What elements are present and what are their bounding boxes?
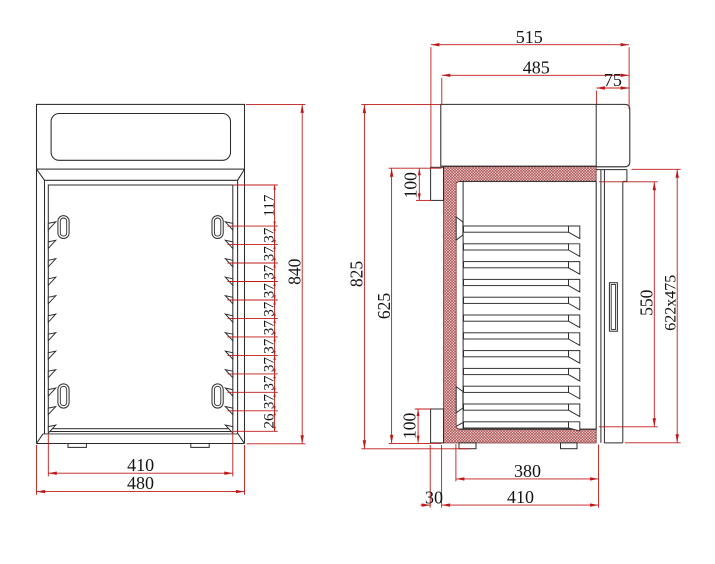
svg-text:485: 485 xyxy=(523,57,550,77)
svg-text:480: 480 xyxy=(127,473,154,493)
svg-text:37: 37 xyxy=(262,375,278,391)
svg-text:37: 37 xyxy=(262,394,278,410)
svg-text:26: 26 xyxy=(262,413,278,429)
svg-text:625: 625 xyxy=(374,293,394,320)
svg-text:37: 37 xyxy=(262,227,278,243)
svg-text:515: 515 xyxy=(516,27,543,47)
svg-text:30: 30 xyxy=(425,488,443,508)
svg-text:622x475: 622x475 xyxy=(662,275,679,331)
svg-text:100: 100 xyxy=(401,172,421,199)
svg-text:37: 37 xyxy=(262,320,278,336)
svg-text:37: 37 xyxy=(262,264,278,280)
svg-text:410: 410 xyxy=(127,455,154,475)
svg-text:37: 37 xyxy=(262,283,278,299)
svg-text:37: 37 xyxy=(262,338,278,354)
svg-text:75: 75 xyxy=(604,70,622,90)
svg-text:37: 37 xyxy=(262,301,278,317)
svg-text:410: 410 xyxy=(507,487,534,507)
svg-text:825: 825 xyxy=(347,261,367,288)
svg-text:100: 100 xyxy=(399,413,419,440)
svg-text:840: 840 xyxy=(284,258,304,285)
svg-text:550: 550 xyxy=(637,289,657,316)
svg-text:37: 37 xyxy=(262,357,278,373)
svg-text:117: 117 xyxy=(262,194,278,216)
svg-text:380: 380 xyxy=(514,461,541,481)
svg-text:37: 37 xyxy=(262,246,278,261)
